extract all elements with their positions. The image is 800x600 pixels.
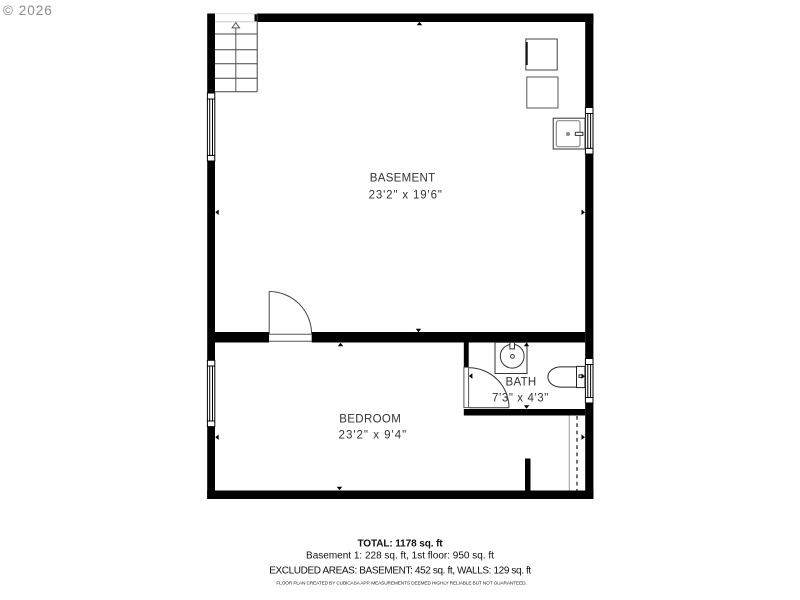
svg-text:BATH: BATH [505, 376, 536, 388]
svg-text:7'3" x 4'3": 7'3" x 4'3" [492, 392, 549, 404]
svg-text:BEDROOM: BEDROOM [339, 414, 401, 426]
svg-text:BASEMENT: BASEMENT [370, 173, 436, 185]
svg-text:EXCLUDED AREAS: BASEMENT: 452: EXCLUDED AREAS: BASEMENT: 452 sq. ft, WA… [269, 565, 531, 576]
svg-text:FLOOR PLAN CREATED BY CUBICASA: FLOOR PLAN CREATED BY CUBICASA APP. MEAS… [276, 581, 526, 587]
svg-text:© 2026: © 2026 [3, 3, 53, 18]
svg-text:TOTAL: 1178 sq. ft: TOTAL: 1178 sq. ft [357, 539, 443, 550]
svg-text:23'2" x 9'4": 23'2" x 9'4" [339, 429, 408, 441]
svg-text:23'2" x 19'6": 23'2" x 19'6" [369, 189, 443, 201]
svg-text:Basement 1: 228 sq. ft, 1st fl: Basement 1: 228 sq. ft, 1st floor: 950 s… [306, 550, 494, 561]
